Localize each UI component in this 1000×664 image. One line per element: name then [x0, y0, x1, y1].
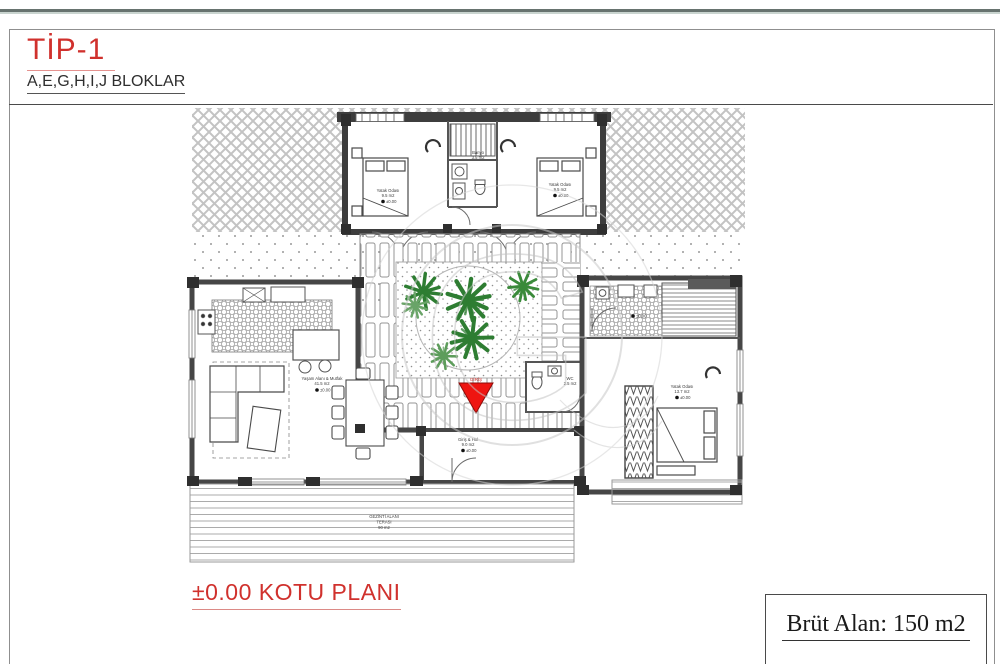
bathroom-fixtures — [596, 285, 657, 299]
floor-plan-page: TİP-1 A,E,G,H,I,J BLOKLAR — [0, 0, 1000, 664]
wardrobe — [625, 386, 653, 478]
room-area-label: 9.5 m2 — [382, 193, 395, 198]
room-area-label: 41.5 m2 — [314, 381, 330, 386]
gross-area-box: Brüt Alan: 150 m2 — [765, 594, 987, 664]
watermark-letter: G — [421, 205, 604, 468]
elevation-label: ±0.00 — [680, 395, 691, 400]
wall-segment — [688, 279, 736, 289]
terrace-label: TERASI — [376, 520, 391, 525]
plan-caption: ±0.00 KOTU PLANI — [192, 579, 401, 610]
gross-area-label: Brüt Alan: 150 m2 — [782, 611, 969, 641]
terrace-label: 90 m2 — [378, 525, 390, 530]
terrace-deck: GEZİNTİ ALANI TERASI 90 m2 — [190, 484, 574, 562]
side-deck — [612, 480, 742, 504]
terrace-label: GEZİNTİ ALANI — [369, 514, 399, 519]
elevation-label: ±0.00 — [320, 388, 331, 393]
kitchen-island — [293, 330, 339, 360]
shower — [662, 283, 736, 336]
elevation-label: ±0.00 — [386, 199, 397, 204]
stool — [319, 360, 331, 372]
floor-plan-drawing: Yatak Odası 9.5 m2 ±0.00 Yatak Odası 9.5… — [0, 0, 1000, 664]
elevation-label: ±0.00 — [636, 314, 647, 319]
coffee-table — [247, 406, 281, 451]
master-wing: ±0.00 Yatak Odası 13.7 m2 ±0.00 — [582, 278, 743, 492]
room-area-label: 13.7 m2 — [674, 389, 690, 394]
stool — [299, 361, 311, 373]
room-area-label: 3.5 m2 — [472, 155, 485, 160]
